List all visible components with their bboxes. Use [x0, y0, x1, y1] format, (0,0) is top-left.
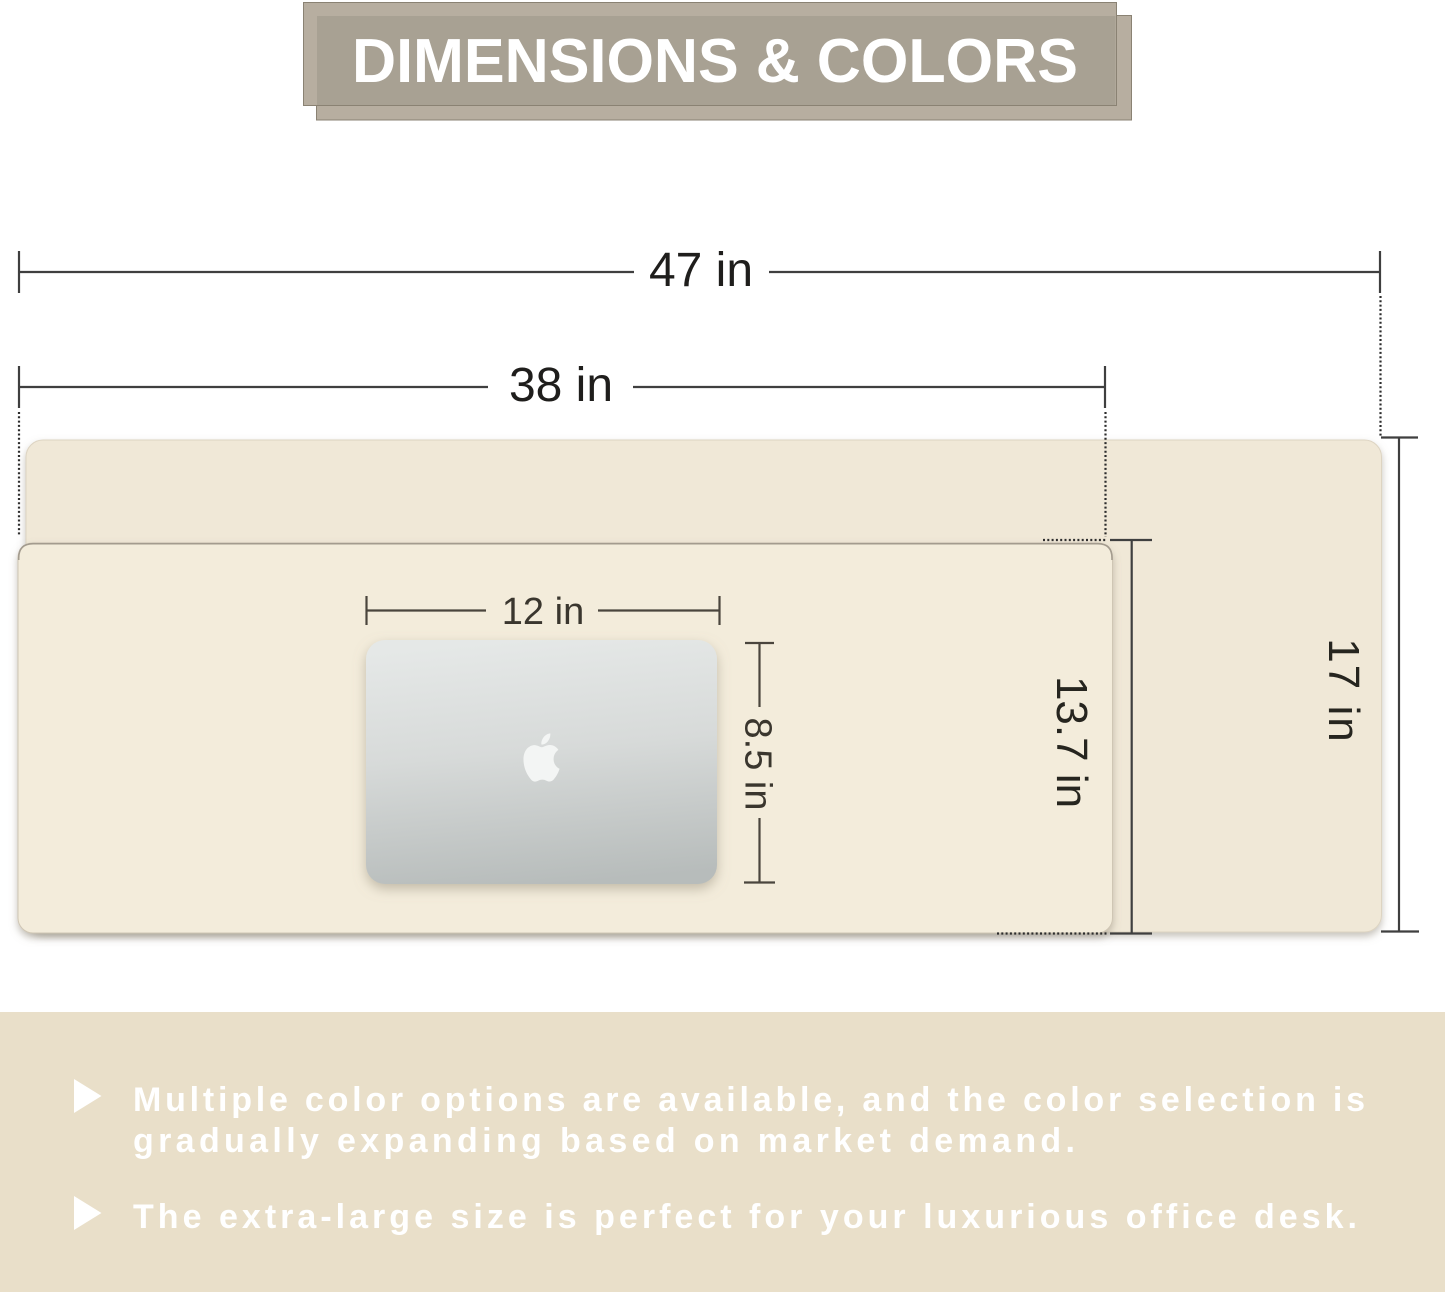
- svg-text:12 in: 12 in: [502, 591, 584, 633]
- svg-text:17 in: 17 in: [1319, 638, 1368, 743]
- svg-text:38 in: 38 in: [509, 359, 613, 412]
- svg-text:DIMENSIONS & COLORS: DIMENSIONS & COLORS: [352, 27, 1078, 96]
- svg-text:13.7 in: 13.7 in: [1047, 676, 1096, 808]
- svg-text:8.5 in: 8.5 in: [736, 718, 778, 811]
- svg-text:47 in: 47 in: [649, 244, 753, 297]
